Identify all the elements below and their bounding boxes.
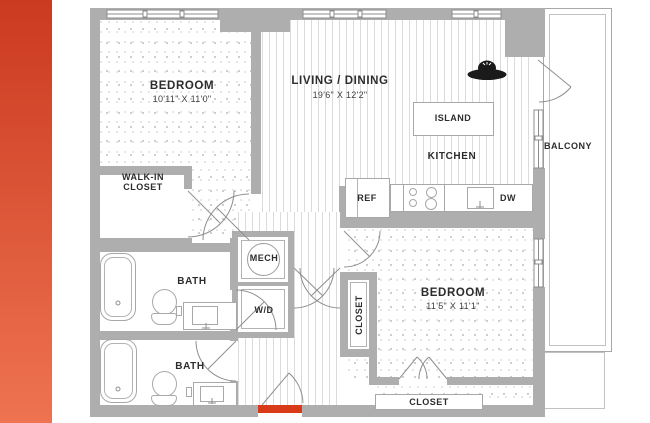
bedroom2-label: BEDROOM <box>421 287 485 300</box>
faucet <box>208 398 216 404</box>
door-swing <box>344 231 380 267</box>
bedroom1-label: BEDROOM <box>150 80 214 93</box>
faucet <box>476 201 484 208</box>
door-swing <box>188 191 234 237</box>
plan-annotations <box>0 0 650 423</box>
floor-plan: CLOSET <box>0 0 650 423</box>
window <box>534 110 543 168</box>
window <box>303 10 386 18</box>
kitchen-label: KITCHEN <box>428 151 477 162</box>
island-label: ISLAND <box>435 113 472 123</box>
tub-drain <box>116 387 120 391</box>
living-dining-dims: 19'6" X 12'2" <box>313 90 368 100</box>
door-swing <box>538 60 571 102</box>
dishwasher-label: DW <box>500 193 516 203</box>
balcony-label: BALCONY <box>544 141 592 151</box>
bath2-label: BATH <box>175 361 204 372</box>
window <box>452 10 501 18</box>
bedroom2-dims: 11'5" X 11'1" <box>426 301 479 311</box>
mech-label: MECH <box>250 253 279 263</box>
bath1-label: BATH <box>177 276 206 287</box>
living-dining-label: LIVING / DINING <box>291 75 388 88</box>
door-swing <box>262 373 303 405</box>
door-swing <box>300 268 340 308</box>
faucet <box>202 323 210 329</box>
window <box>534 239 543 287</box>
ceiling-fan-icon <box>468 61 507 81</box>
washer-dryer-label: W/D <box>255 305 274 315</box>
tub-drain <box>116 301 120 305</box>
bedroom1-dims: 10'11" X 11'0" <box>153 94 212 104</box>
walk-in-closet-label: WALK-IN CLOSET <box>112 172 174 192</box>
window <box>107 10 218 18</box>
double-door-swing <box>399 357 447 379</box>
hall-closet-label: CLOSET <box>354 287 364 343</box>
refrigerator-label: REF <box>357 193 377 203</box>
